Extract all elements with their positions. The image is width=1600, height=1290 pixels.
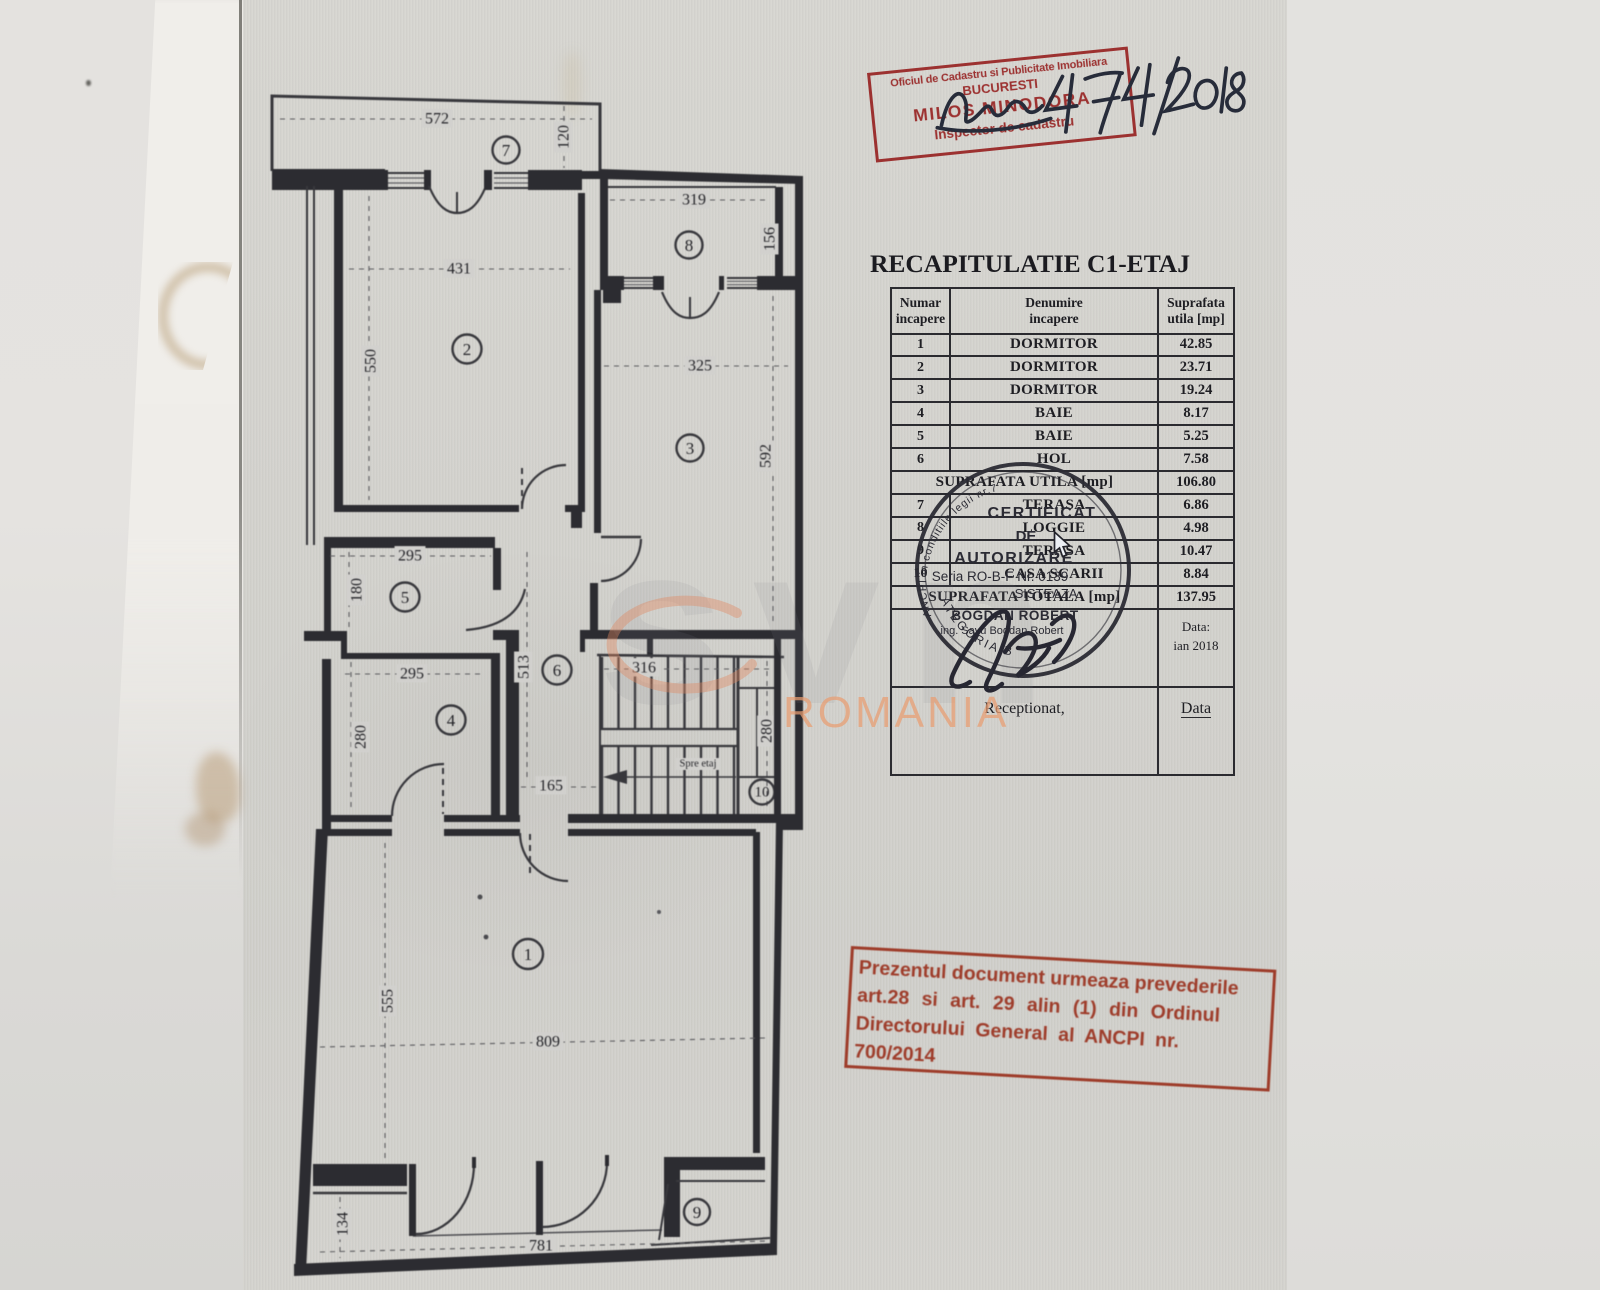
- svg-text:DE: DE: [1016, 528, 1037, 545]
- svg-text:CATEGORIA B: CATEGORIA B: [0, 0, 1016, 659]
- svg-text:SISTEAZA: SISTEAZA: [1015, 586, 1078, 601]
- svg-text:Persoana autorizata de ANCPI i: Persoana autorizata de ANCPI in conditii…: [0, 0, 999, 622]
- svg-text:CERTIFICAT: CERTIFICAT: [988, 505, 1097, 522]
- svg-text:Seria RO-B-F Nr. 0139: Seria RO-B-F Nr. 0139: [932, 569, 1069, 584]
- svg-text:ing. Savu Bogdan Robert: ing. Savu Bogdan Robert: [941, 625, 1064, 637]
